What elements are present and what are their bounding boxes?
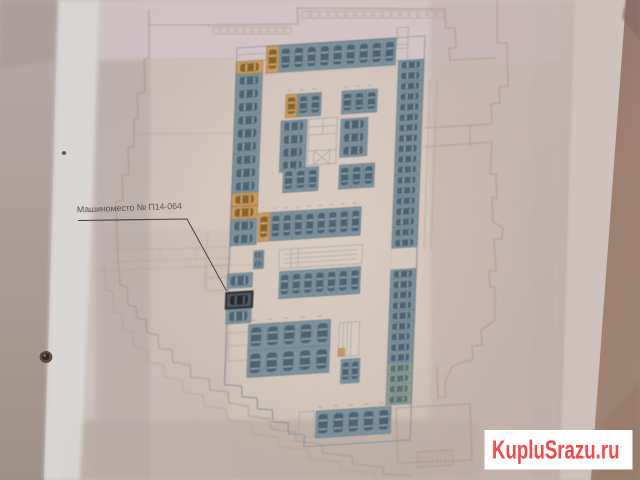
svg-text:KupluSrazu.ru: KupluSrazu.ru <box>492 435 620 465</box>
